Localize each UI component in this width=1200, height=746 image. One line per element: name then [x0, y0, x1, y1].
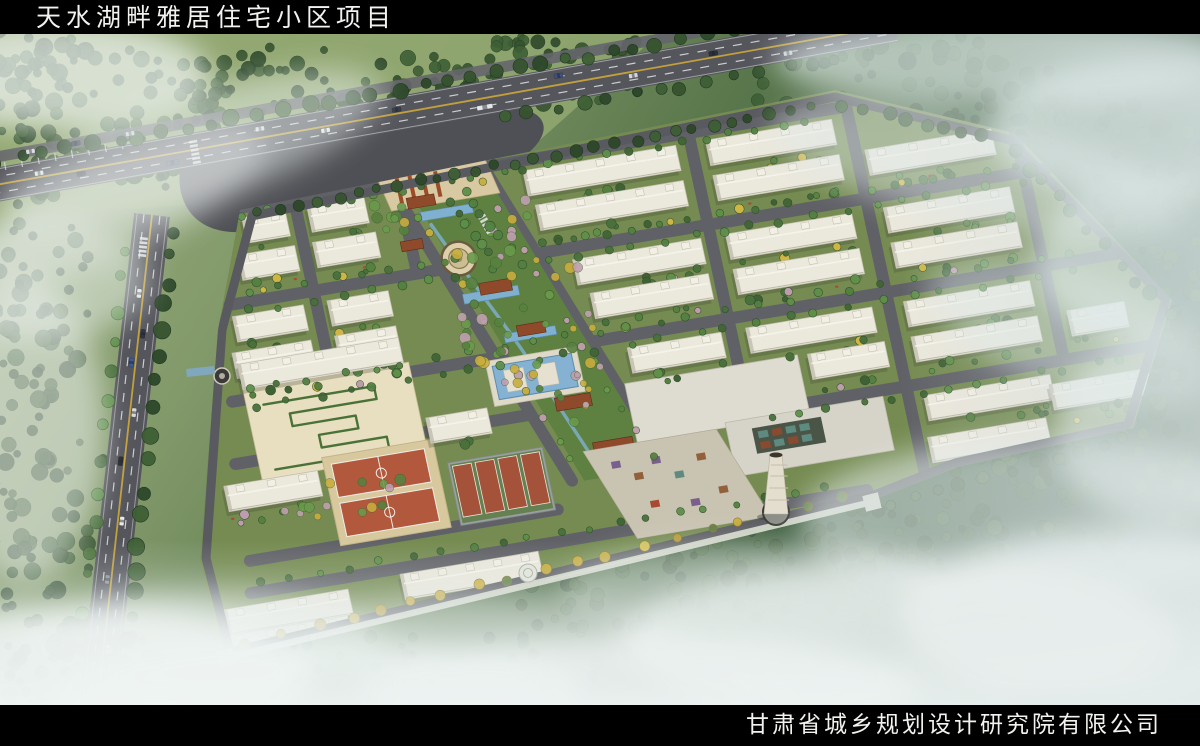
page-title: 天水湖畔雅居住宅小区项目: [36, 0, 396, 35]
design-institute-credit: 甘肃省城乡规划设计研究院有限公司: [746, 705, 1162, 746]
rendering-page: 天水湖畔雅居住宅小区项目 甘肃省城乡规划设计研究院有限公司: [0, 0, 1200, 746]
credit-bar: 甘肃省城乡规划设计研究院有限公司: [0, 705, 1200, 746]
title-bar: 天水湖畔雅居住宅小区项目: [0, 0, 1200, 34]
aerial-rendering: [0, 0, 1200, 746]
